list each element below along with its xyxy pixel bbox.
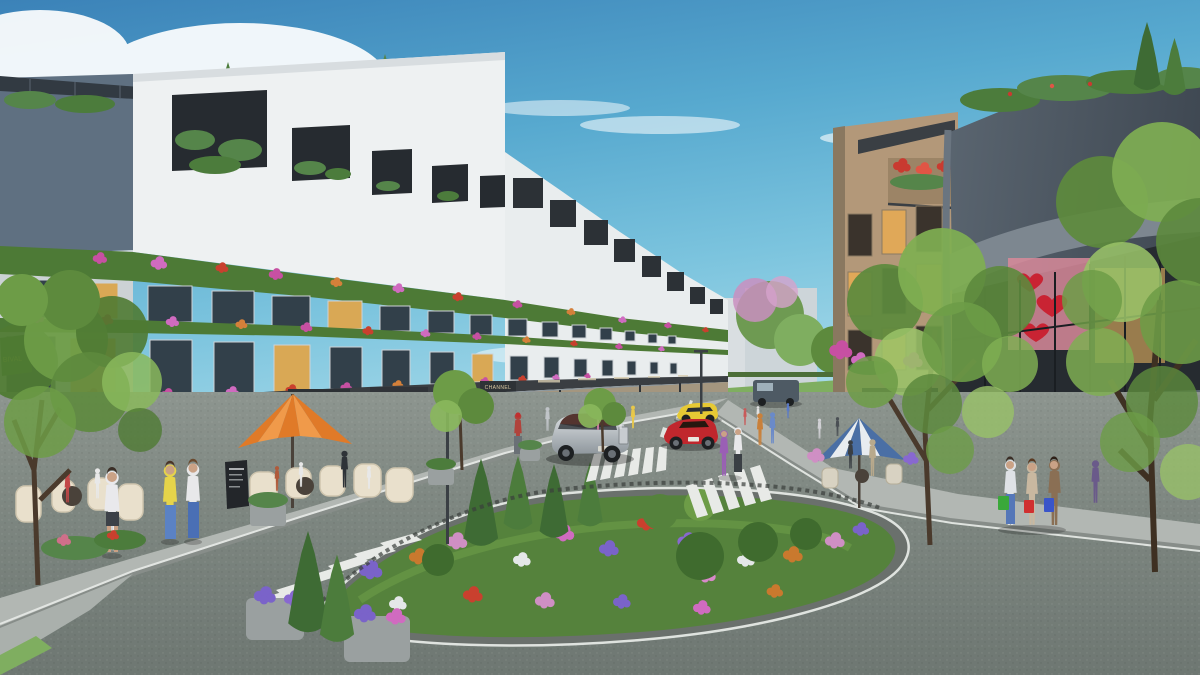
cafe-table	[62, 486, 82, 506]
shopping-bag-blue	[1044, 498, 1054, 512]
shopping-bag-green	[998, 496, 1009, 510]
scene-canvas: CALVIN KLEIN STELLA COFFEE SHENLONG tea …	[0, 0, 1200, 675]
channel-far-sign: CHANNEL	[485, 385, 512, 391]
cafe-table	[296, 477, 314, 495]
right-cafe-table	[855, 469, 869, 483]
streetscape-render: CALVIN KLEIN STELLA COFFEE SHENLONG tea …	[0, 0, 1200, 675]
chalkboard-sign	[225, 460, 249, 509]
shopping-bag-red	[1024, 500, 1034, 513]
van-distant	[750, 380, 802, 408]
